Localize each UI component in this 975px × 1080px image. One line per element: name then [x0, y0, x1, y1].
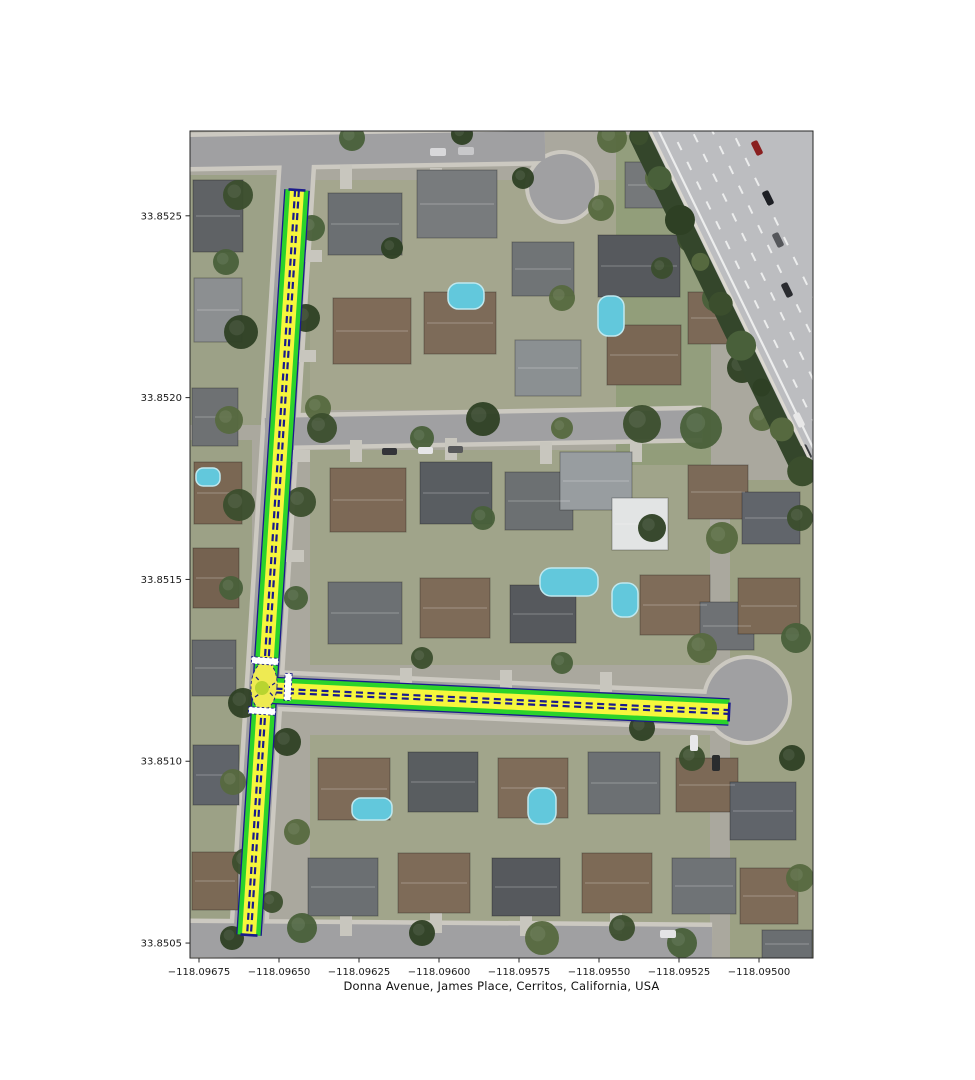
tree-highlight — [711, 527, 725, 541]
tree-highlight — [228, 494, 242, 508]
culdesac-asphalt — [529, 154, 595, 220]
tree-highlight — [471, 407, 486, 422]
swimming-pool — [598, 296, 624, 336]
tree-highlight — [783, 749, 795, 761]
driveway — [350, 440, 362, 462]
driveway — [540, 442, 552, 464]
x-tick-label: −118.09625 — [328, 967, 390, 978]
tree-highlight — [786, 628, 800, 642]
highlighted-road-james-end-cap — [729, 703, 730, 722]
parked-car — [712, 755, 720, 771]
street-asphalt — [190, 146, 545, 152]
tree-highlight — [223, 580, 234, 591]
parked-car — [690, 735, 698, 751]
tree-highlight — [219, 410, 232, 423]
tree-highlight — [229, 320, 244, 335]
tree-highlight — [224, 930, 235, 941]
tree-highlight — [791, 509, 803, 521]
tree-highlight — [414, 430, 425, 441]
street-asphalt — [190, 940, 712, 944]
parked-car — [418, 447, 433, 454]
figure-canvas: −118.09675−118.09650−118.09625−118.09600… — [0, 0, 975, 1080]
tree-highlight — [475, 510, 486, 521]
x-tick-label: −118.09525 — [648, 967, 710, 978]
tree-highlight — [613, 919, 625, 931]
crosswalk — [284, 673, 292, 700]
tree-highlight — [384, 240, 394, 250]
parked-car — [430, 148, 446, 156]
x-tick-label: −118.09675 — [168, 967, 230, 978]
tree-highlight — [292, 918, 306, 932]
tree-highlight — [224, 773, 236, 785]
tree-highlight — [530, 926, 545, 941]
freeway-tree — [752, 379, 770, 397]
highlighted-road-donna-end-cap — [289, 189, 306, 190]
tree-highlight — [642, 518, 655, 531]
tree-highlight — [554, 420, 564, 430]
tree-highlight — [592, 199, 604, 211]
x-tick-label: −118.09650 — [248, 967, 310, 978]
swimming-pool — [196, 468, 220, 486]
junction-node — [255, 681, 269, 695]
driveway — [600, 672, 612, 692]
tree-highlight — [312, 418, 326, 432]
plot-xlabel: Donna Avenue, James Place, Cerritos, Cal… — [190, 979, 813, 993]
parked-car — [458, 147, 474, 155]
driveway — [500, 670, 512, 690]
x-tick-label: −118.09500 — [728, 967, 790, 978]
y-tick-label: 33.8505 — [141, 939, 182, 950]
swimming-pool — [448, 283, 484, 309]
swimming-pool — [612, 583, 638, 617]
tree-highlight — [654, 260, 664, 270]
freeway-tree — [709, 292, 733, 316]
tree-highlight — [414, 650, 424, 660]
driveway — [340, 165, 352, 189]
y-tick-label: 33.8515 — [141, 575, 182, 586]
swimming-pool — [528, 788, 556, 824]
freeway-tree — [726, 331, 756, 361]
driveway — [284, 550, 304, 562]
tree-highlight — [288, 590, 299, 601]
tree-highlight — [217, 253, 229, 265]
tree-highlight — [413, 924, 425, 936]
freeway-tree — [665, 205, 695, 235]
tree-highlight — [554, 655, 564, 665]
parked-car — [448, 446, 463, 453]
tree-highlight — [686, 413, 705, 432]
tree-highlight — [515, 170, 525, 180]
matplotlib-figure: −118.09675−118.09650−118.09625−118.09600… — [0, 0, 975, 1080]
tree-highlight — [291, 492, 305, 506]
highlighted-road-donna-end-cap — [241, 934, 258, 935]
tree-highlight — [228, 185, 242, 199]
y-tick-label: 33.8525 — [141, 211, 182, 222]
tree-highlight — [629, 411, 646, 428]
x-tick-label: −118.09600 — [408, 967, 470, 978]
tree-highlight — [553, 289, 565, 301]
y-tick-label: 33.8520 — [141, 393, 182, 404]
x-tick-label: −118.09575 — [488, 967, 550, 978]
tree-highlight — [309, 399, 321, 411]
y-tick-label: 33.8510 — [141, 757, 182, 768]
tree-highlight — [277, 732, 290, 745]
freeway-tree — [648, 166, 672, 190]
tree-highlight — [692, 638, 706, 652]
tree-highlight — [790, 868, 803, 881]
tree-highlight — [288, 823, 300, 835]
freeway-tree — [691, 253, 709, 271]
x-tick-label: −118.09550 — [568, 967, 630, 978]
freeway-tree — [770, 417, 794, 441]
parked-car — [660, 930, 676, 938]
swimming-pool — [540, 568, 598, 596]
tree-highlight — [264, 894, 274, 904]
parked-car — [382, 448, 397, 455]
driveway — [290, 450, 310, 462]
tree-highlight — [233, 693, 247, 707]
swimming-pool — [352, 798, 392, 820]
